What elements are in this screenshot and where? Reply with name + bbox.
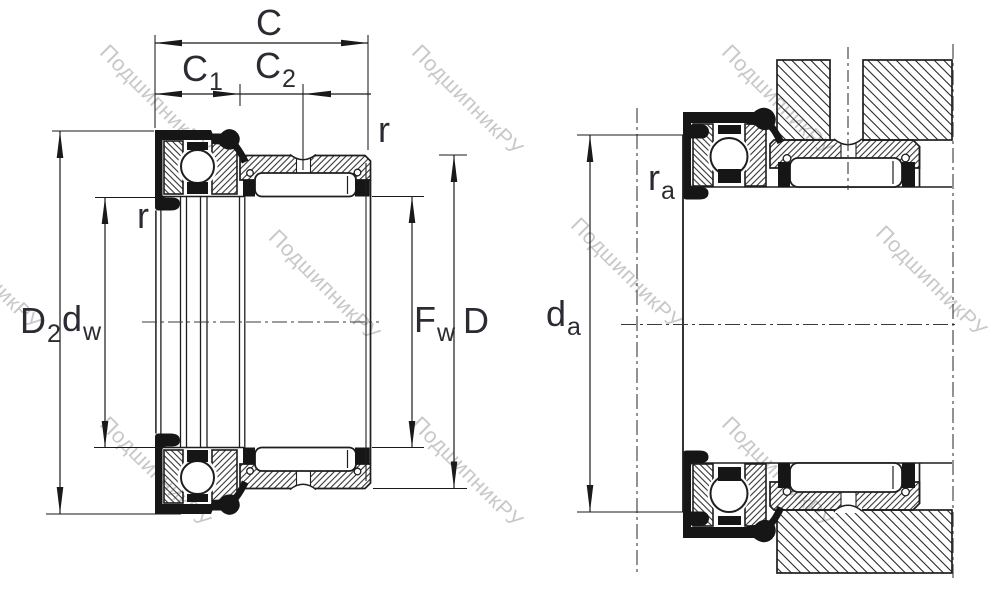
technical-drawing	[0, 0, 998, 596]
bearing-dimension-diagram: ПодшипникРУ ПодшипникРУ ПодшипникРУ Подш…	[0, 0, 998, 596]
housing-block-top-left	[777, 60, 830, 140]
dimension-label-da: da	[546, 296, 581, 332]
extension-lines	[46, 35, 683, 514]
dimension-label-c2: C2	[255, 48, 296, 84]
cage-rivet	[354, 169, 361, 176]
right-mounting-view	[621, 44, 958, 578]
dimension-annotations	[46, 35, 683, 514]
ball-cage-section	[187, 142, 208, 150]
dimension-label-ra: ra	[648, 160, 675, 196]
dimension-label-fw: Fw	[414, 302, 455, 338]
cage-rivet	[247, 170, 254, 177]
needle-roller	[790, 158, 902, 187]
dimension-label-r-left: r	[137, 198, 150, 234]
needle-cage-end	[778, 162, 790, 187]
dimension-label-d2: D2	[20, 303, 61, 339]
needle-roller	[255, 173, 356, 197]
needle-cage-end	[902, 162, 915, 187]
left-section-view	[142, 129, 379, 515]
ball-cage-section	[187, 182, 208, 194]
dimension-label-dw: dw	[62, 301, 101, 337]
ball-cage-section	[718, 125, 741, 134]
dimension-label-r-right: r	[378, 112, 391, 148]
cage-rivet	[902, 154, 910, 162]
needle-cage-end	[355, 180, 370, 197]
thrust-ball	[181, 150, 214, 183]
cage-rivet	[783, 155, 791, 163]
dimension-label-d: D	[463, 303, 490, 339]
housing-block-top-right	[863, 60, 952, 140]
dimension-label-c: C	[256, 5, 283, 41]
housing-block-bottom	[777, 510, 952, 573]
dimension-label-c1: C1	[182, 51, 223, 87]
dimension-lines	[57, 40, 594, 514]
needle-cage-end	[243, 180, 255, 197]
ball-cage-section	[718, 169, 741, 183]
